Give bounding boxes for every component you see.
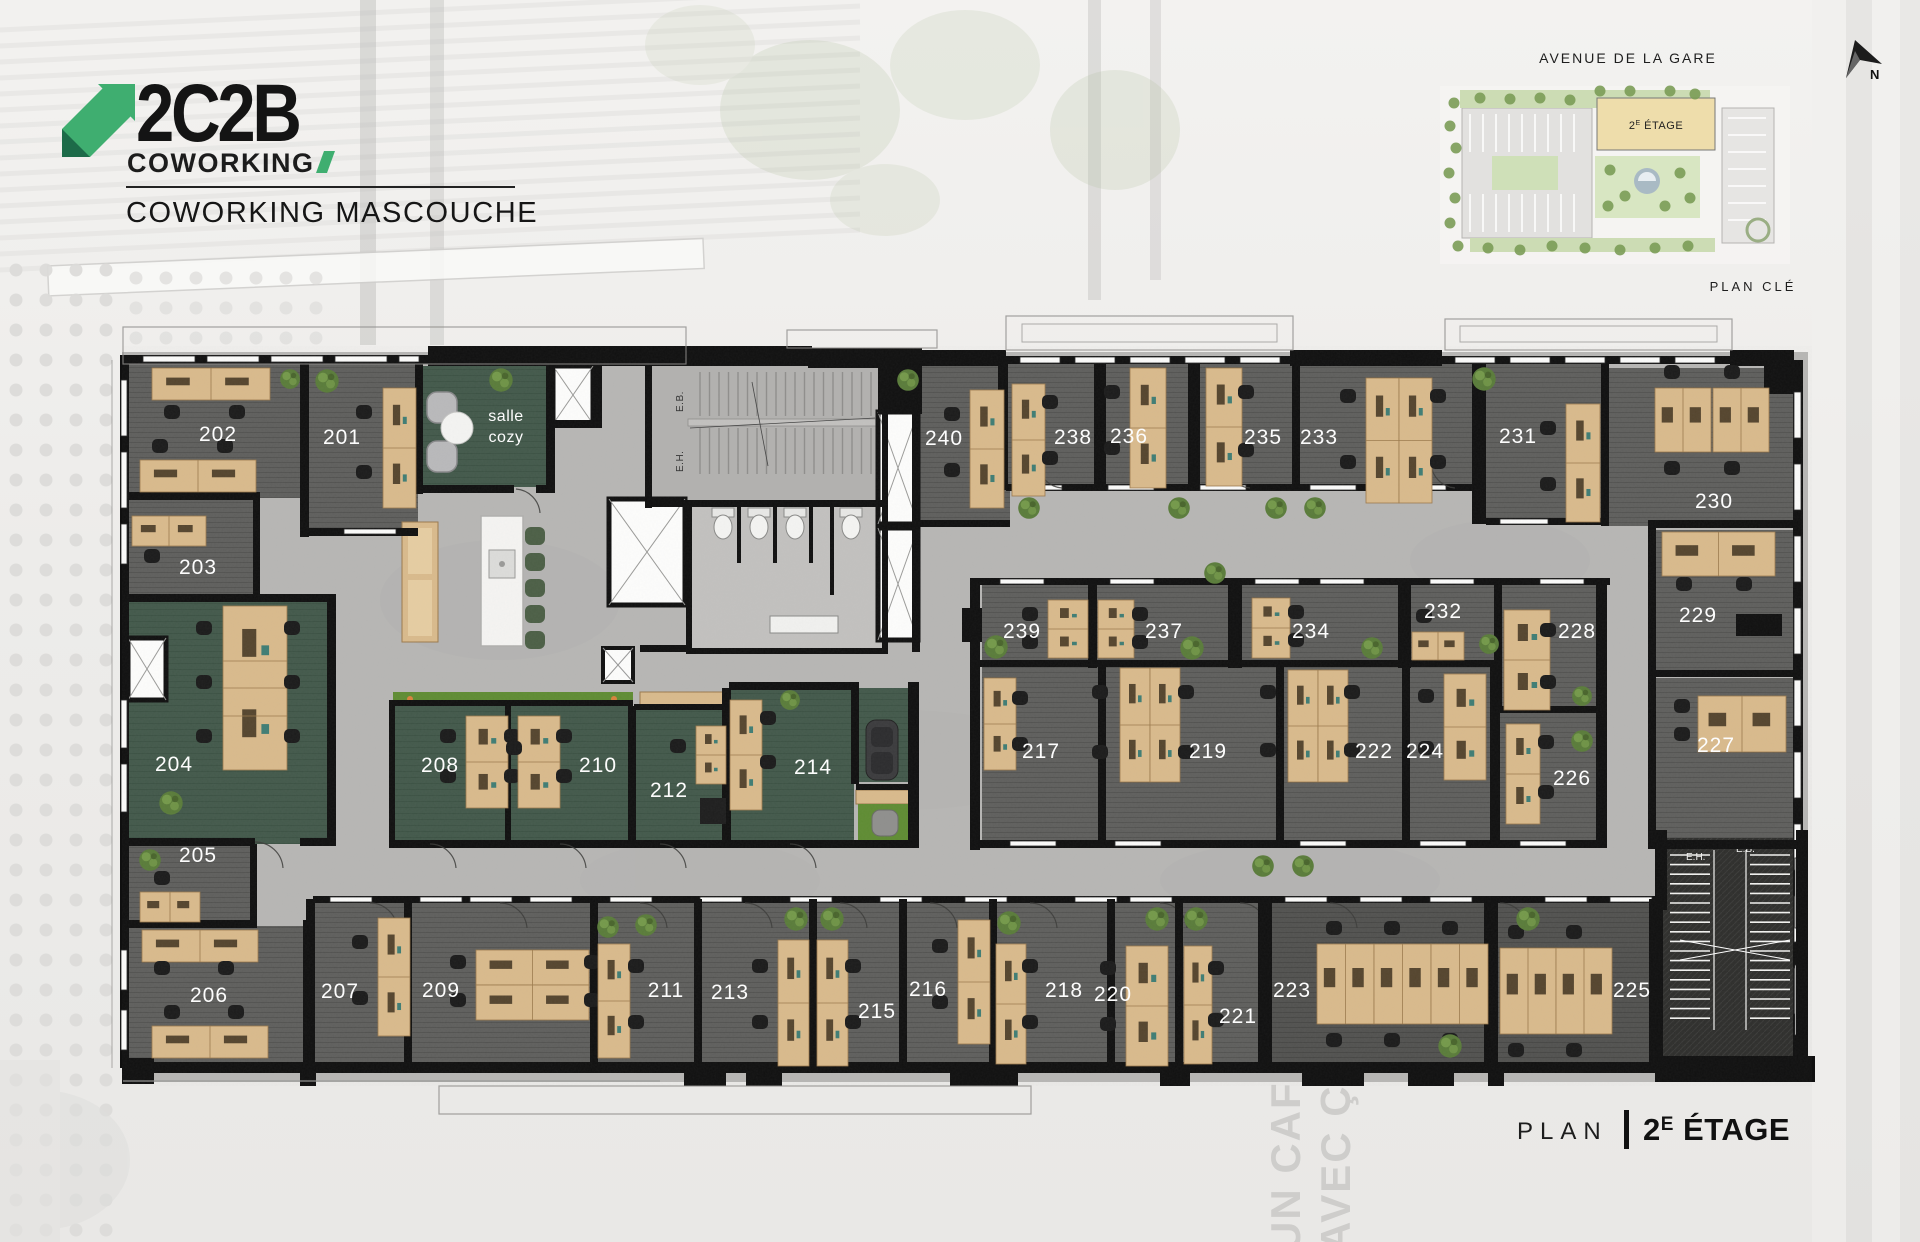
svg-text:PLAN: PLAN [1517,1118,1608,1145]
svg-text:2C2B: 2C2B [136,67,300,159]
svg-text:COWORKING MASCOUCHE: COWORKING MASCOUCHE [126,197,538,229]
svg-text:AVENUE DE LA GARE: AVENUE DE LA GARE [1539,50,1717,66]
svg-text:PLAN CLÉ: PLAN CLÉ [1710,279,1797,294]
svg-text:2E ÉTAGE: 2E ÉTAGE [1643,1112,1790,1147]
svg-text:N: N [1870,67,1879,82]
svg-text:COWORKING: COWORKING [127,148,314,178]
